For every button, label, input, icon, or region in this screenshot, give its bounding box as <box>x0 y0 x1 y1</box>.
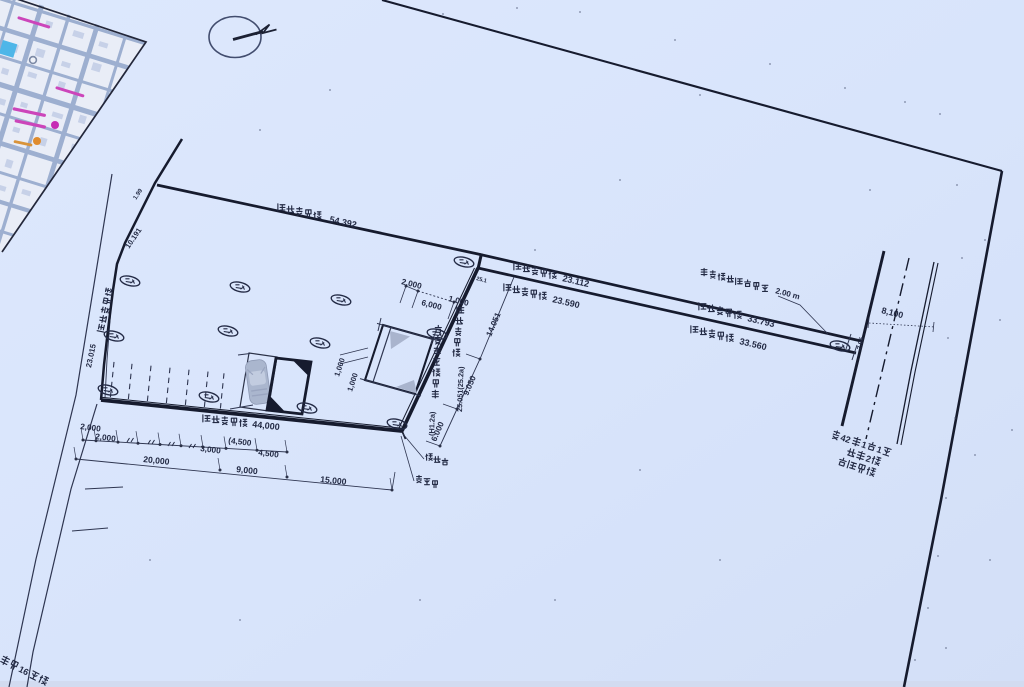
svg-text:(H1.2a): (H1.2a) <box>427 411 437 436</box>
svg-text:25.051(25.2a): 25.051(25.2a) <box>455 366 466 412</box>
